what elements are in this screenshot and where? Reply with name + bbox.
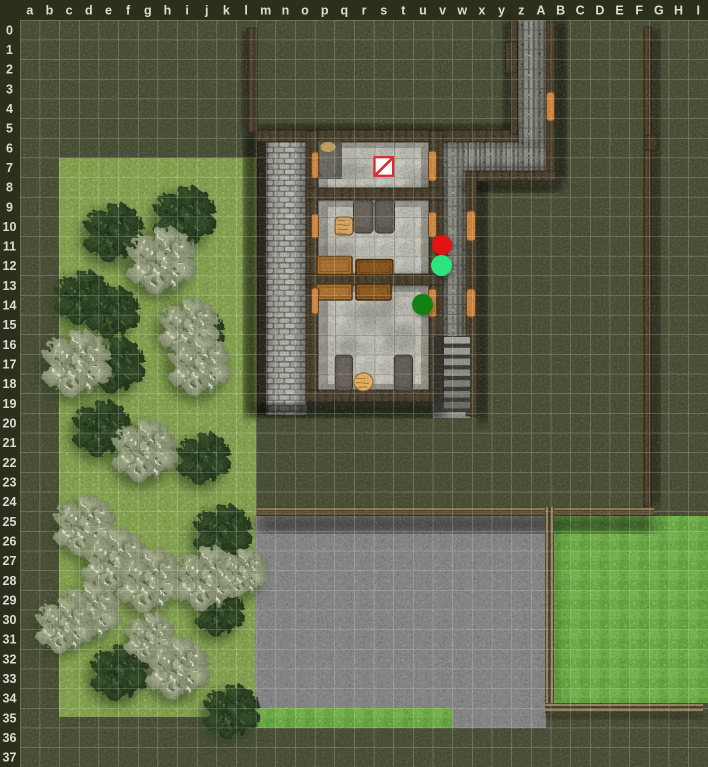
svg-text:4: 4 — [6, 102, 13, 116]
svg-text:b: b — [46, 4, 54, 18]
svg-text:y: y — [498, 4, 505, 18]
svg-text:E: E — [615, 4, 623, 18]
svg-text:11: 11 — [3, 240, 16, 254]
svg-text:o: o — [301, 4, 309, 18]
svg-text:37: 37 — [3, 751, 17, 765]
svg-text:w: w — [456, 4, 467, 18]
svg-text:i: i — [185, 4, 188, 18]
svg-text:35: 35 — [3, 711, 17, 725]
svg-text:z: z — [518, 4, 524, 18]
svg-text:m: m — [260, 4, 271, 18]
svg-text:23: 23 — [3, 476, 17, 490]
svg-text:9: 9 — [6, 200, 13, 214]
svg-text:l: l — [244, 4, 247, 18]
svg-text:s: s — [380, 4, 387, 18]
svg-text:30: 30 — [3, 613, 17, 627]
svg-text:B: B — [556, 4, 565, 18]
svg-text:16: 16 — [3, 338, 17, 352]
svg-text:d: d — [85, 4, 93, 18]
svg-text:I: I — [696, 4, 699, 18]
svg-text:36: 36 — [3, 731, 17, 745]
svg-text:2: 2 — [6, 63, 13, 77]
svg-text:g: g — [144, 4, 152, 18]
svg-text:p: p — [321, 4, 329, 18]
svg-text:x: x — [478, 4, 485, 18]
svg-text:28: 28 — [3, 574, 17, 588]
svg-text:8: 8 — [6, 181, 13, 195]
svg-text:C: C — [576, 4, 585, 18]
svg-text:22: 22 — [3, 456, 17, 470]
svg-text:26: 26 — [3, 534, 17, 548]
svg-text:H: H — [674, 4, 683, 18]
svg-text:25: 25 — [3, 515, 17, 529]
svg-text:14: 14 — [3, 299, 17, 313]
svg-text:3: 3 — [6, 82, 13, 96]
svg-text:a: a — [26, 4, 34, 18]
svg-text:29: 29 — [3, 593, 17, 607]
svg-text:13: 13 — [3, 279, 17, 293]
svg-text:A: A — [536, 4, 545, 18]
svg-text:17: 17 — [3, 358, 17, 372]
svg-text:31: 31 — [3, 633, 17, 647]
svg-text:18: 18 — [3, 377, 17, 391]
svg-text:15: 15 — [3, 318, 17, 332]
svg-text:19: 19 — [3, 397, 17, 411]
svg-text:c: c — [66, 4, 73, 18]
svg-text:7: 7 — [6, 161, 13, 175]
svg-text:r: r — [362, 4, 367, 18]
svg-text:27: 27 — [3, 554, 17, 568]
svg-text:D: D — [595, 4, 604, 18]
svg-text:5: 5 — [6, 122, 13, 136]
svg-text:0: 0 — [6, 23, 13, 37]
svg-text:u: u — [419, 4, 427, 18]
svg-text:h: h — [164, 4, 172, 18]
svg-text:12: 12 — [3, 259, 17, 273]
svg-text:k: k — [223, 4, 230, 18]
svg-text:q: q — [340, 4, 348, 18]
svg-text:6: 6 — [6, 141, 13, 155]
svg-text:F: F — [635, 4, 643, 18]
svg-text:10: 10 — [3, 220, 17, 234]
svg-text:34: 34 — [3, 692, 17, 706]
svg-text:21: 21 — [3, 436, 17, 450]
svg-text:n: n — [282, 4, 290, 18]
svg-text:1: 1 — [6, 43, 13, 57]
svg-text:v: v — [439, 4, 446, 18]
svg-text:j: j — [204, 4, 208, 18]
svg-text:33: 33 — [3, 672, 17, 686]
svg-text:24: 24 — [3, 495, 17, 509]
svg-text:e: e — [105, 4, 112, 18]
svg-text:32: 32 — [3, 652, 17, 666]
svg-text:20: 20 — [3, 417, 17, 431]
svg-text:G: G — [654, 4, 664, 18]
